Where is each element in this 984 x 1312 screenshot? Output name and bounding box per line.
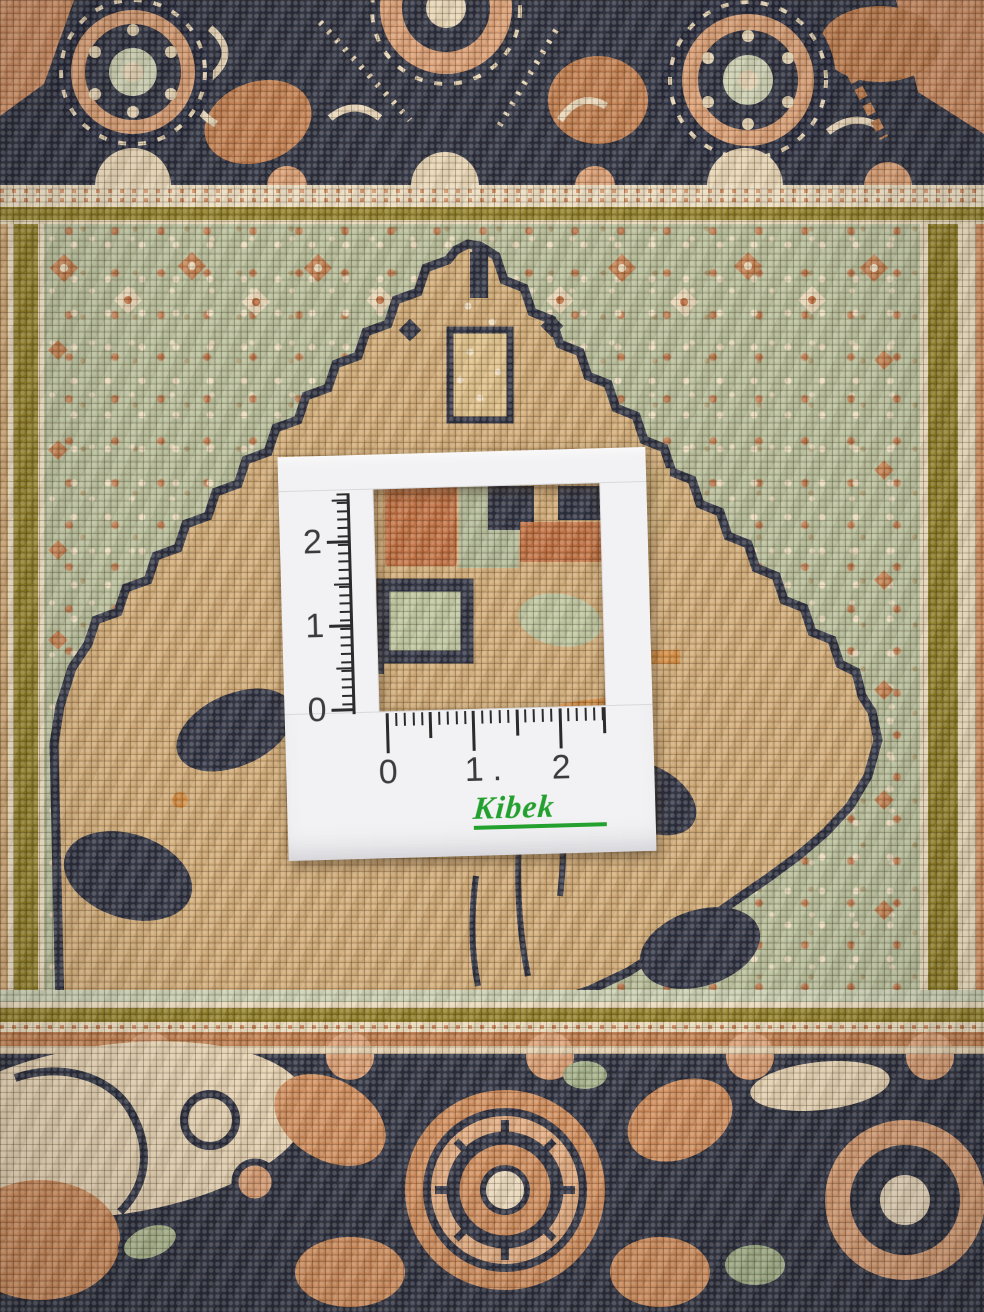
hruler-decimal-dot: . bbox=[482, 751, 513, 788]
top-rosette-right bbox=[660, 0, 836, 168]
vertical-ruler-half-tick bbox=[334, 583, 349, 585]
bottom-border-band bbox=[0, 1018, 984, 1312]
rug-photo: 2 1 0 0 1 . 2 Kibek bbox=[0, 0, 984, 1312]
hruler-label-2: 2 bbox=[546, 749, 577, 786]
vertical-ruler-half-tick bbox=[336, 667, 351, 669]
vertical-ruler-cm-tick bbox=[329, 624, 350, 628]
bottom-rosette-center bbox=[400, 1085, 610, 1295]
card-cutout-window bbox=[373, 483, 605, 711]
vertical-ruler-half-tick bbox=[332, 499, 347, 501]
bottom-rosette-right bbox=[820, 1115, 984, 1285]
hruler-label-0: 0 bbox=[373, 754, 404, 791]
measuring-card: 2 1 0 0 1 . 2 Kibek bbox=[277, 447, 656, 861]
vruler-label-1: 1 bbox=[290, 609, 325, 644]
top-guard-stripes bbox=[0, 185, 984, 224]
vertical-ruler-cm-tick bbox=[327, 540, 348, 544]
vruler-label-2: 2 bbox=[287, 525, 322, 560]
card-face-right bbox=[599, 482, 652, 705]
kibek-logo: Kibek bbox=[472, 788, 556, 827]
vertical-ruler-cm-tick bbox=[331, 708, 352, 712]
card-face-left bbox=[278, 490, 379, 715]
vruler-label-0: 0 bbox=[292, 693, 327, 728]
